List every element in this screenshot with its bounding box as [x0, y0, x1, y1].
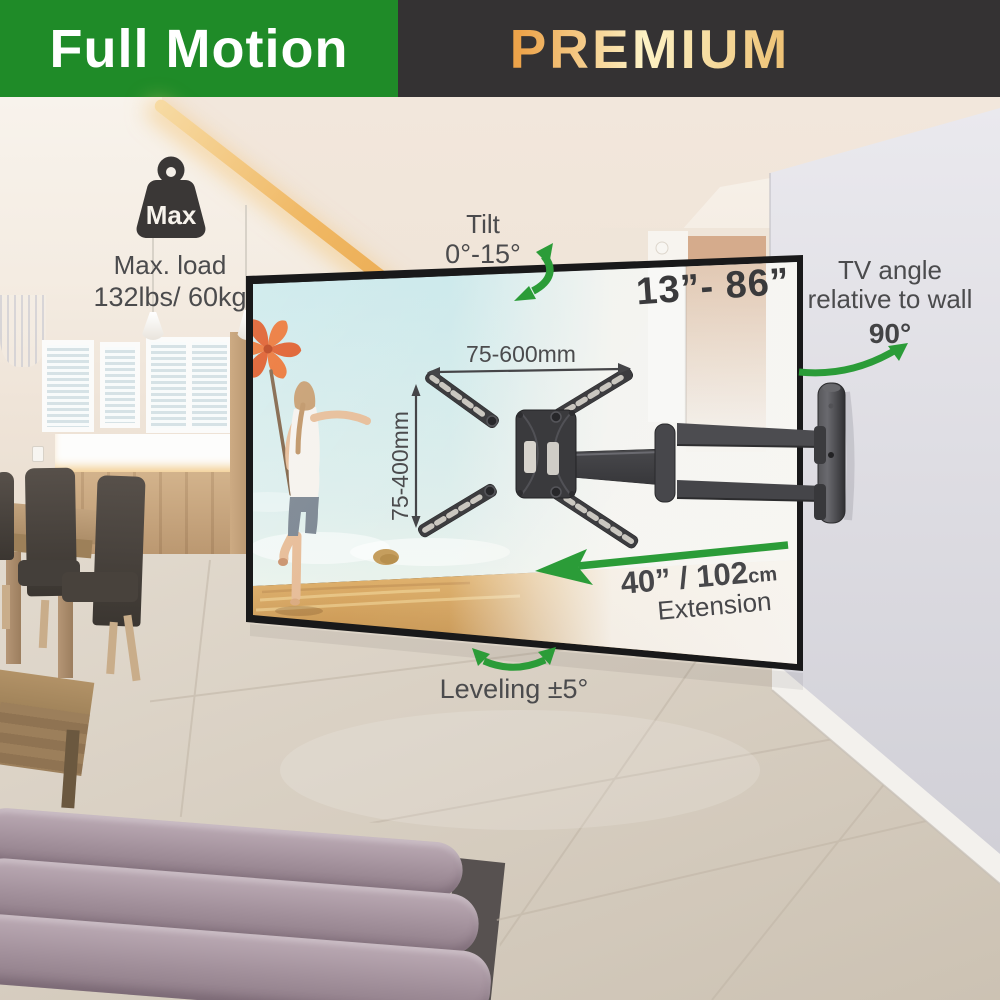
extension-unit: cm [747, 563, 778, 587]
max-icon-label: Max [146, 200, 197, 230]
bolt [829, 404, 834, 409]
tv-angle-line2: relative to wall [770, 285, 1000, 314]
floor-sheen [280, 710, 760, 830]
tilt-value: 0°-15° [445, 239, 521, 269]
wall-shadow [846, 392, 851, 520]
plate-slot [524, 441, 536, 473]
max-load-value: 132lbs/ 60kg [55, 282, 285, 312]
vesa-height-label: 75-400mm [388, 411, 414, 521]
tilt-title: Tilt [445, 210, 521, 239]
screw [569, 410, 575, 416]
bolt [828, 452, 834, 458]
screw [485, 486, 495, 496]
plate-slot [547, 442, 559, 475]
screw [551, 487, 561, 497]
weight-icon: Max [126, 150, 214, 242]
product-infographic: Full Motion PREMIUM [0, 0, 1000, 1000]
mount-elbow-joint [655, 424, 675, 502]
max-load-title: Max. load [55, 251, 285, 280]
tv-angle-callout: TV angle relative to wall 90° [770, 256, 1000, 350]
hinge-knuckle [814, 484, 826, 520]
screw [551, 412, 561, 422]
leveling-label: Leveling ±5° [440, 674, 589, 704]
hinge-knuckle [814, 426, 826, 464]
screw [517, 412, 523, 418]
tv-angle-value: 90° [770, 318, 1000, 349]
vesa-width-label: 75-600mm [466, 342, 576, 368]
smoke-detector [656, 242, 668, 254]
max-load-callout: Max Max. load 132lbs/ 60kg [55, 150, 285, 312]
screw [569, 491, 575, 497]
screw [517, 490, 523, 496]
tv [226, 255, 803, 690]
tv-angle-line1: TV angle [770, 256, 1000, 285]
screw [487, 416, 497, 426]
tilt-callout: Tilt 0°-15° [445, 210, 521, 269]
extension-separator: / [669, 559, 698, 596]
column-cap [823, 384, 841, 392]
